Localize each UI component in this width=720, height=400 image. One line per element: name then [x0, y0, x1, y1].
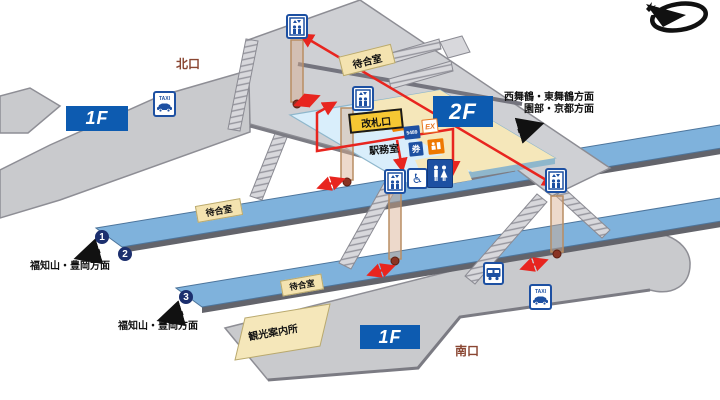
ticket-vending-machine-icon: 券	[408, 141, 423, 156]
platform-2-badge: 2	[118, 247, 132, 261]
wheelchair-access-icon: ♿	[407, 168, 428, 189]
ex-pickup-machine-icon: EX	[421, 118, 438, 134]
midori-glyph	[429, 140, 442, 152]
ticket-5489-machine-icon: 5489	[403, 125, 420, 140]
restroom-icon	[427, 159, 453, 188]
car-glyph	[532, 295, 549, 305]
station-office-label: 駅務室	[368, 140, 399, 158]
north-ground	[0, 70, 250, 218]
south-exit-label: 南口	[455, 342, 479, 359]
elevator-glyph	[548, 171, 564, 190]
midori-pickup-machine-icon	[427, 138, 444, 155]
floor-label-1f-south: 1F	[360, 325, 420, 349]
taxi-stand-icon: TAXI	[529, 284, 552, 310]
arrow-west-lower	[163, 313, 183, 319]
direction-west-upper-label: 福知山・豊岡方面	[30, 261, 110, 273]
platform-1-badge: 1	[95, 230, 109, 244]
elevator-icon	[384, 169, 406, 194]
floor-label-1f-north: 1F	[66, 106, 128, 131]
elevator-icon	[545, 168, 567, 193]
elevator-glyph	[289, 17, 305, 36]
north-compass-icon	[644, 0, 708, 34]
arrow-west-upper	[80, 251, 100, 257]
restroom-glyph	[431, 164, 449, 183]
direction-west-lower-label: 福知山・豊岡方面	[118, 321, 198, 333]
car-glyph	[156, 102, 173, 112]
direction-east-line1: 西舞鶴・東舞鶴方面	[464, 92, 594, 104]
elevator-icon	[286, 14, 308, 39]
elevator-icon	[352, 86, 374, 111]
taxi-stand-icon: TAXI	[153, 91, 176, 117]
bus-glyph	[485, 266, 502, 281]
station-map: 1F 2F 1F 北口 南口 西舞鶴・東舞鶴方面 園部・京都方面 福知山・豊岡方…	[0, 0, 720, 400]
bus-stop-icon	[483, 262, 504, 285]
direction-east-line2: 園部・京都方面	[464, 104, 594, 116]
elevator-glyph	[387, 172, 403, 191]
direction-east-label: 西舞鶴・東舞鶴方面 園部・京都方面	[464, 92, 594, 116]
platform-3-badge: 3	[179, 290, 193, 304]
elevator-glyph	[355, 89, 371, 108]
north-exit-label: 北口	[176, 55, 200, 72]
